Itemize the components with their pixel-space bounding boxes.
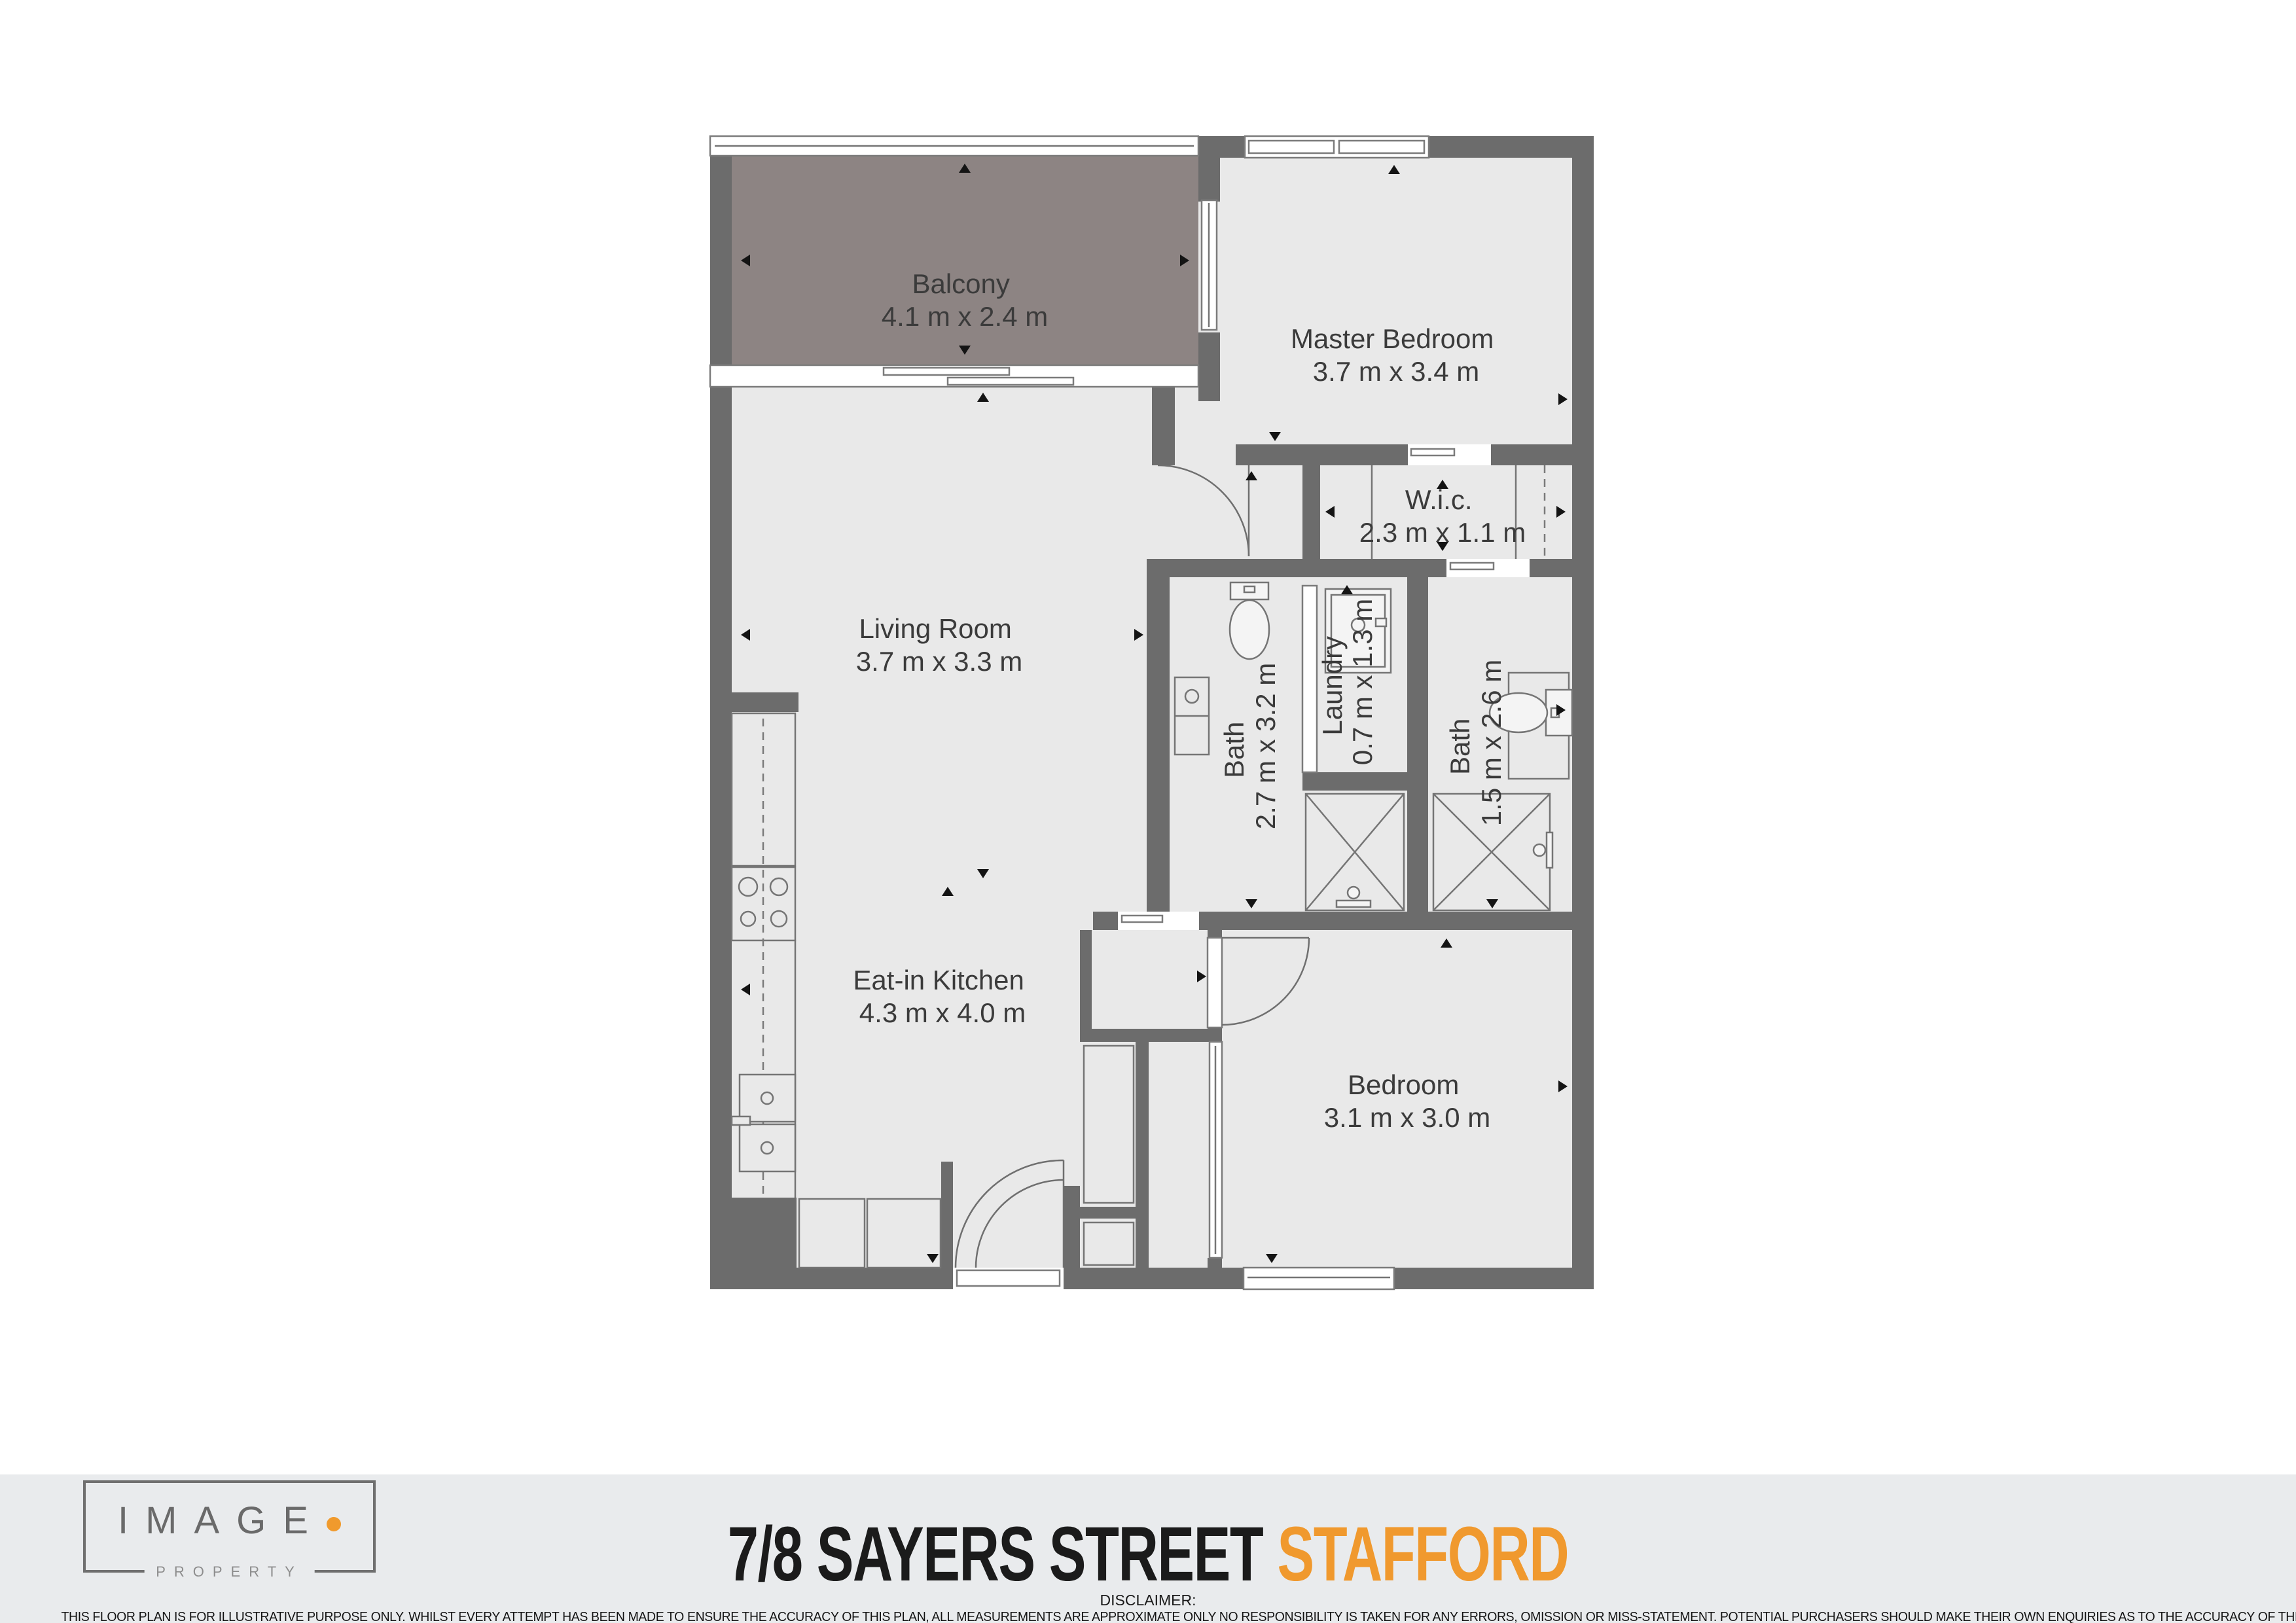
- balcony-floor: [732, 156, 1198, 365]
- floor-plan: Balcony 4.1 m x 2.4 m Master Bedroom 3.7…: [687, 118, 1636, 1329]
- entry-closet-1: [1084, 1046, 1134, 1203]
- bedroom-doorway: [1208, 938, 1222, 1027]
- suburb-text: STAFFORD: [1278, 1511, 1569, 1597]
- kitchen-sink-1: [740, 1075, 795, 1122]
- kitchen-tap: [732, 1116, 750, 1125]
- disclaimer-text: THIS FLOOR PLAN IS FOR ILLUSTRATIVE PURP…: [62, 1609, 2296, 1623]
- floor-plan-page: Balcony 4.1 m x 2.4 m Master Bedroom 3.7…: [0, 0, 2296, 1623]
- bedroom-window: [1244, 1268, 1394, 1289]
- entry-closet-2: [1084, 1222, 1134, 1265]
- kitchen-cabinet-1: [799, 1199, 865, 1268]
- kitchen-sink-2: [740, 1124, 795, 1171]
- disclaimer-label: DISCLAIMER:: [0, 1592, 2296, 1609]
- title-row: 7/8 SAYERS STREET STAFFORD: [0, 1516, 2296, 1593]
- disclaimer-row: THIS FLOOR PLAN IS FOR ILLUSTRATIVE PURP…: [0, 1609, 2296, 1623]
- shower2-mixer: [1534, 844, 1545, 856]
- shower-mixer: [1336, 901, 1371, 907]
- address-text: 7/8 SAYERS STREET: [728, 1511, 1278, 1597]
- laundry-sliding-door: [1302, 586, 1317, 772]
- page-title: 7/8 SAYERS STREET STAFFORD: [728, 1516, 1568, 1593]
- toilet-bowl: [1230, 600, 1269, 659]
